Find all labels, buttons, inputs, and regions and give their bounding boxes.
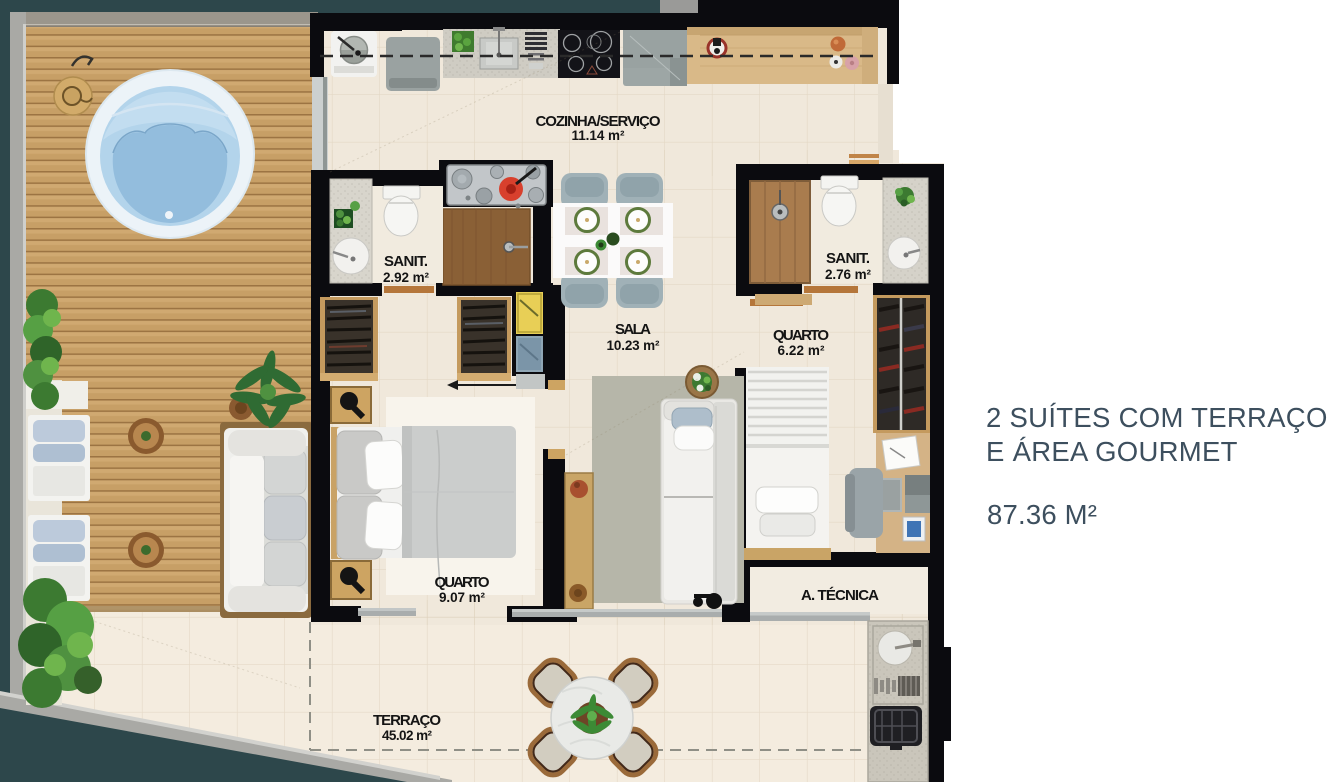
svg-text:2.92 m²: 2.92 m² [383,270,430,285]
svg-text:45.02 m²: 45.02 m² [382,728,433,743]
svg-text:TERRAÇO: TERRAÇO [373,712,441,729]
svg-text:SANIT.: SANIT. [826,250,870,267]
svg-text:SANIT.: SANIT. [384,253,428,270]
svg-text:A. TÉCNICA: A. TÉCNICA [801,587,879,604]
svg-text:SALA: SALA [615,321,651,338]
svg-text:6.22 m²: 6.22 m² [778,343,826,358]
svg-text:10.23 m²: 10.23 m² [607,338,661,353]
svg-text:QUARTO: QUARTO [773,327,829,344]
svg-text:11.14 m²: 11.14 m² [572,128,626,143]
svg-text:2.76 m²: 2.76 m² [825,267,872,282]
svg-text:9.07 m²: 9.07 m² [439,590,486,605]
svg-text:QUARTO: QUARTO [435,574,490,591]
